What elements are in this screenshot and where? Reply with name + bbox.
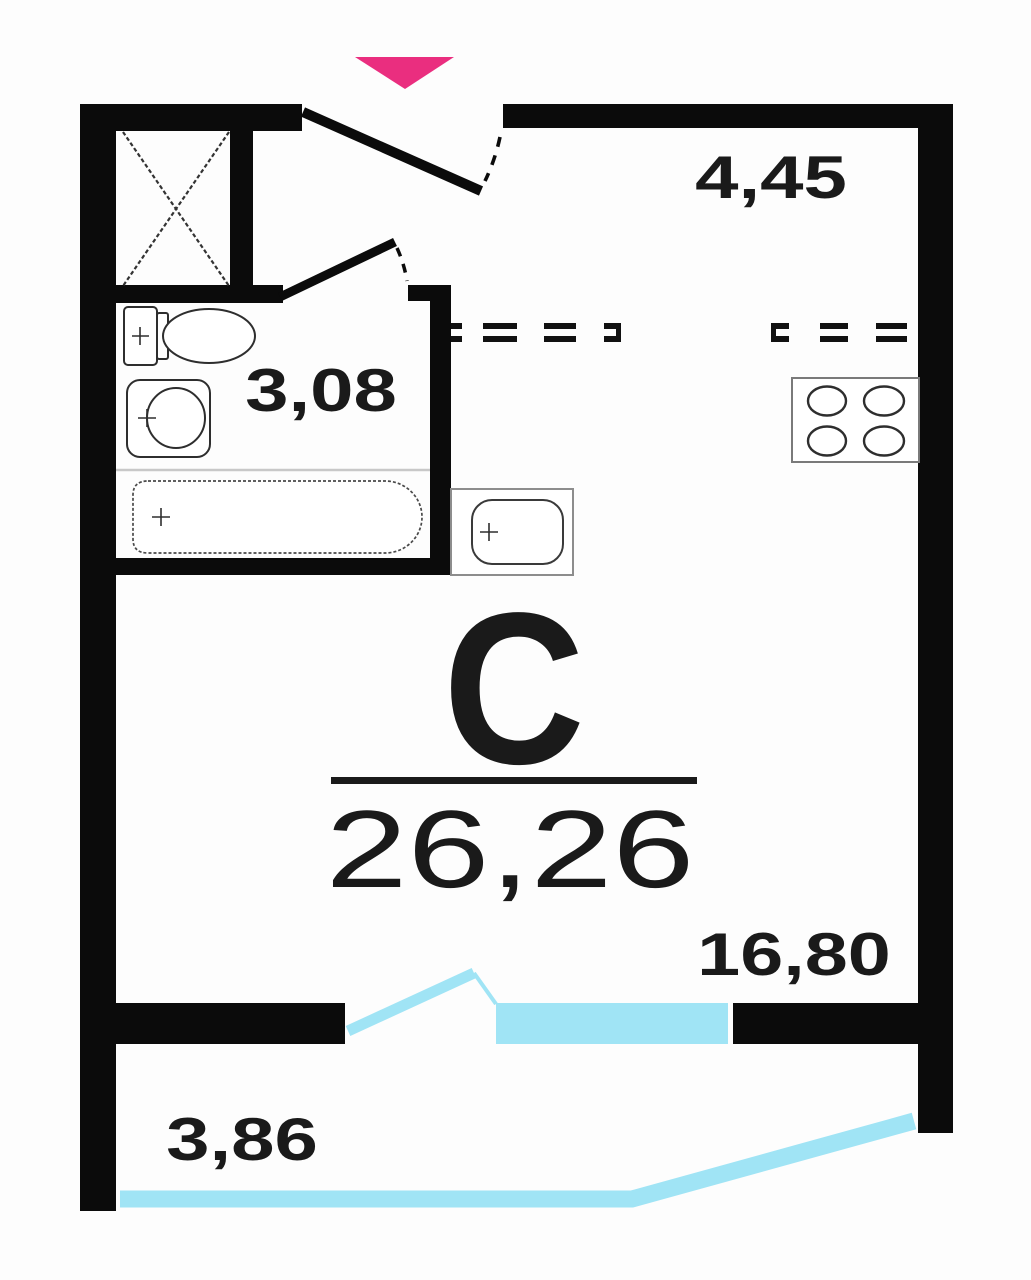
svg-text:4,45: 4,45: [695, 144, 847, 211]
svg-text:C: C: [443, 567, 585, 809]
svg-text:26,26: 26,26: [326, 787, 695, 910]
svg-text:3,86: 3,86: [166, 1106, 318, 1173]
svg-text:3,08: 3,08: [245, 357, 397, 424]
svg-text:16,80: 16,80: [697, 920, 891, 988]
